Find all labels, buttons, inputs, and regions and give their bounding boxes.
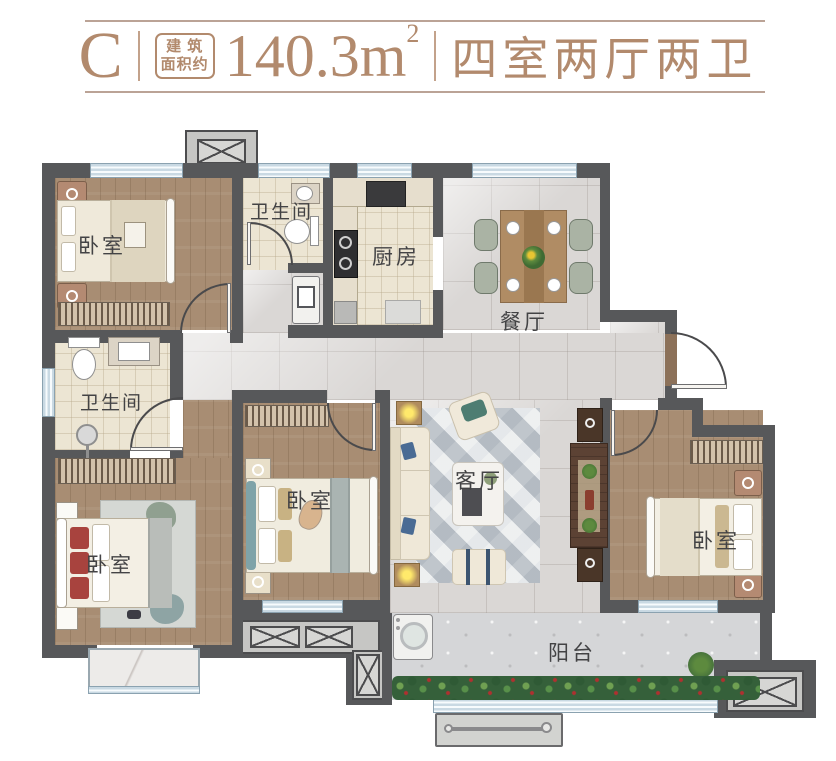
door-leaf <box>611 410 615 456</box>
wall-segment <box>243 390 327 403</box>
shaft-x-icon <box>305 626 353 648</box>
wall-segment <box>55 450 130 458</box>
wall-segment <box>288 325 443 338</box>
wardrobe <box>690 440 763 464</box>
wall-segment <box>170 450 183 458</box>
window <box>638 600 718 613</box>
room-label-balcony: 阳台 <box>548 637 596 667</box>
plate <box>547 278 561 292</box>
shower-head <box>76 424 98 446</box>
room-label-bathroom-top: 卫生间 <box>250 197 313 224</box>
plate <box>506 278 520 292</box>
ottoman-bench <box>452 549 506 585</box>
shaft-x-icon <box>250 626 300 648</box>
dining-chair <box>474 219 498 251</box>
washer-knob-icon <box>396 626 400 630</box>
bench-rug <box>58 302 170 326</box>
window <box>472 163 577 178</box>
door-leaf <box>247 222 251 265</box>
speaker-cone-icon <box>585 418 595 428</box>
window <box>42 368 55 417</box>
planter-hedge <box>392 676 760 700</box>
lamp-glow <box>395 564 419 586</box>
wall-segment <box>763 437 775 613</box>
pillow <box>61 206 76 236</box>
wall-segment <box>288 263 323 273</box>
flower-centerpiece <box>522 246 545 269</box>
wall-segment <box>600 310 677 322</box>
room-label-bathroom-left: 卫生间 <box>80 388 143 415</box>
sofa-seam <box>400 515 430 516</box>
lamp-glow <box>397 402 421 424</box>
room-label-bedroom-right: 卧室 <box>692 525 740 555</box>
plate <box>547 221 561 235</box>
nightstand-lamp <box>742 477 754 489</box>
header: C 建 筑 面积约 140.3m 2 四室两厅两卫 <box>0 22 836 90</box>
room-label-dining: 餐厅 <box>500 306 548 336</box>
dining-chair <box>569 219 593 251</box>
wall-segment <box>170 333 183 400</box>
wall-segment <box>323 178 333 338</box>
pillow-red <box>70 527 89 549</box>
wall-segment <box>658 398 703 410</box>
burner-icon <box>339 257 352 270</box>
rod-end-icon <box>444 724 453 733</box>
wall-segment <box>230 330 243 343</box>
nightstand-lamp <box>66 290 78 302</box>
top-shaft-x-icon <box>197 139 246 164</box>
bay-window-glass <box>88 686 200 694</box>
plant <box>582 464 597 479</box>
plant <box>582 518 597 533</box>
wall-segment <box>600 163 610 310</box>
shaft-x-icon <box>356 654 380 696</box>
pillow <box>258 486 276 522</box>
pillow-red <box>70 577 89 599</box>
kitchen-mat <box>385 300 421 324</box>
window <box>90 163 183 178</box>
pillow-tan <box>278 530 292 562</box>
nightstand-lamp <box>66 188 78 200</box>
nightstand <box>56 606 78 630</box>
room-label-living: 客厅 <box>455 465 503 495</box>
header-bottom-rule <box>85 91 765 93</box>
floor-plan-page: C 建 筑 面积约 140.3m 2 四室两厅两卫 <box>0 0 836 761</box>
entry-door-leaf <box>671 384 727 389</box>
layout-spec: 四室两厅两卫 <box>451 23 757 89</box>
plate <box>506 221 520 235</box>
room-label-kitchen: 厨房 <box>372 241 420 271</box>
stamp-line2: 面积约 <box>161 56 209 73</box>
header-divider <box>434 31 436 81</box>
washer-drum-icon <box>400 622 428 650</box>
unit-letter: C <box>79 23 123 89</box>
window <box>357 163 412 178</box>
nightstand-lamp <box>252 576 264 588</box>
speaker-cone-icon <box>585 558 595 568</box>
room-label-bedroom-top-left: 卧室 <box>78 230 126 260</box>
bed-blanket <box>148 518 172 608</box>
area-value: 140.3m <box>225 26 407 86</box>
drying-rod <box>448 727 548 731</box>
washer-knob-icon <box>396 618 400 622</box>
wall-segment <box>232 600 262 613</box>
bench-strap <box>486 549 490 585</box>
door-leaf <box>227 283 231 333</box>
wall-segment <box>42 178 55 368</box>
wall-segment <box>380 403 390 613</box>
bed-footboard <box>646 496 655 578</box>
area-superscript: 2 <box>406 19 419 49</box>
bed-tray <box>124 222 146 248</box>
entry-door-arc <box>671 332 727 388</box>
wall-segment <box>375 390 390 403</box>
bed-headboard <box>56 518 67 608</box>
plant <box>688 652 714 678</box>
header-divider <box>138 31 140 81</box>
wall-segment <box>42 417 55 658</box>
wall-segment <box>343 600 390 613</box>
fridge <box>366 181 406 207</box>
window <box>258 163 330 178</box>
rod-end-icon <box>541 722 552 733</box>
bed-footboard <box>166 198 175 284</box>
wall-segment <box>433 290 443 338</box>
pillow <box>258 528 276 564</box>
wall-segment <box>232 178 243 270</box>
room-label-bedroom-middle: 卧室 <box>286 485 334 515</box>
wall-segment <box>718 600 775 613</box>
dining-chair <box>474 262 498 294</box>
console-decor <box>585 490 594 510</box>
window <box>433 698 718 713</box>
pillow <box>61 242 76 272</box>
stamp-line1: 建 筑 <box>166 38 203 55</box>
wall-segment <box>382 613 392 705</box>
sink <box>118 342 150 361</box>
bench-strap <box>466 549 470 585</box>
wall-segment <box>600 600 638 613</box>
window <box>262 600 343 613</box>
nightstand-lamp <box>252 464 264 476</box>
bed-footboard <box>369 476 378 575</box>
burner-icon <box>339 236 352 249</box>
dining-chair <box>569 262 593 294</box>
slippers <box>127 610 141 619</box>
nightstand-lamp <box>742 579 754 591</box>
toilet-tank <box>68 337 100 348</box>
sofa-seam <box>400 470 430 471</box>
wall-segment <box>760 613 772 665</box>
wall-segment <box>232 390 243 658</box>
room-label-bedroom-bottom-left: 卧室 <box>86 549 134 579</box>
wardrobe <box>58 458 176 484</box>
wall-segment <box>433 178 443 237</box>
wall-segment <box>692 425 775 437</box>
kitchen-cabinet <box>334 301 357 324</box>
toilet <box>72 349 96 380</box>
shower-hose <box>86 444 89 458</box>
area-stamp: 建 筑 面积约 <box>155 33 215 79</box>
cabinet-door-icon <box>297 286 315 308</box>
wardrobe <box>245 405 329 427</box>
door-leaf <box>130 447 183 451</box>
door-leaf <box>372 403 376 451</box>
bed-headboard <box>246 481 256 570</box>
